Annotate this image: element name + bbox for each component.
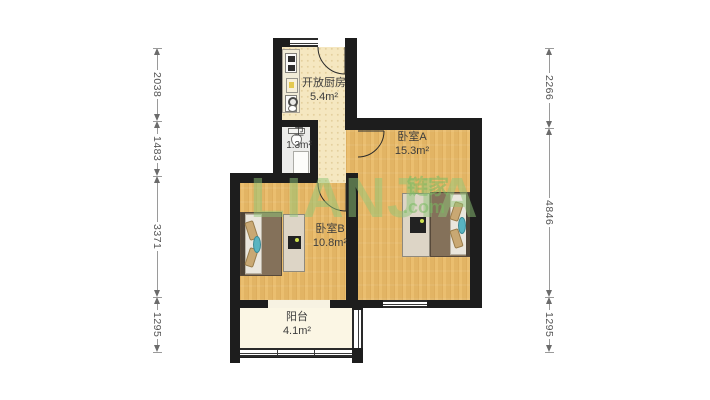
dim-left-4: 1295 xyxy=(149,297,165,352)
cushion-icon xyxy=(253,236,261,253)
dim-value: 1295 xyxy=(151,310,163,339)
room-area: 4.1m² xyxy=(283,324,311,338)
room-name: 阳台 xyxy=(283,310,311,324)
dimension-arrow-down-icon xyxy=(546,121,552,128)
dim-tick xyxy=(545,128,554,129)
dimension-arrow-up-icon xyxy=(546,128,552,135)
window-balcony-right xyxy=(352,310,363,348)
tv-power-dot xyxy=(295,238,299,242)
wall-kitchen-right xyxy=(345,38,357,130)
dimension-arrow-up-icon xyxy=(154,48,160,55)
dim-tick xyxy=(545,297,554,298)
stove-icon xyxy=(285,53,297,73)
window-pane xyxy=(358,310,359,348)
dim-line xyxy=(549,55,550,73)
dim-tick xyxy=(153,48,162,49)
dimension-arrow-up-icon xyxy=(154,176,160,183)
dimension-arrow-up-icon xyxy=(546,297,552,304)
dim-tick xyxy=(545,352,554,353)
window-pane xyxy=(240,353,352,354)
room-name: 开放厨房 xyxy=(302,76,346,90)
dimension-arrow-up-icon xyxy=(154,121,160,128)
cutting-board-icon xyxy=(286,78,298,93)
dim-line xyxy=(157,99,158,114)
dim-line xyxy=(549,103,550,121)
dimension-arrow-down-icon xyxy=(154,114,160,121)
dim-line xyxy=(549,135,550,198)
room-name: 卫 xyxy=(286,126,312,139)
dim-tick xyxy=(153,352,162,353)
dim-value: 1295 xyxy=(543,310,555,339)
room-label-bedroom-a: 卧室A 15.3m² xyxy=(395,130,429,158)
burner xyxy=(288,65,295,71)
dimension-arrow-down-icon xyxy=(546,290,552,297)
balcony-door-opening xyxy=(268,300,330,308)
window-balcony-bottom xyxy=(240,348,352,357)
dimension-arrow-down-icon xyxy=(546,345,552,352)
dimension-arrow-down-icon xyxy=(154,169,160,176)
dim-line xyxy=(157,251,158,290)
room-label-bathroom: 卫 1.3m² xyxy=(286,126,312,152)
dim-value: 3371 xyxy=(151,222,163,251)
window-pane xyxy=(290,43,318,44)
wall-left-outer xyxy=(230,173,240,363)
wall-bedroom-a-top xyxy=(353,118,482,130)
room-area: 5.4m² xyxy=(302,90,346,104)
dim-value: 4846 xyxy=(543,198,555,227)
entry-door-opening xyxy=(317,38,345,47)
dim-left-2: 1483 xyxy=(149,121,165,176)
dim-line xyxy=(157,183,158,222)
window-bedroom-a xyxy=(383,300,427,308)
room-label-balcony: 阳台 4.1m² xyxy=(283,310,311,338)
dim-line xyxy=(157,55,158,70)
room-label-kitchen: 开放厨房 5.4m² xyxy=(302,76,346,104)
sink-icon xyxy=(285,95,297,112)
dimension-arrow-up-icon xyxy=(546,48,552,55)
window-mullion xyxy=(314,350,315,355)
room-area: 1.3m² xyxy=(286,139,312,152)
dim-line xyxy=(549,227,550,290)
dim-left-3: 3371 xyxy=(149,176,165,297)
kitchen-counter xyxy=(282,49,300,113)
kettle-icon xyxy=(288,105,297,112)
dim-left-1: 2038 xyxy=(149,48,165,121)
watermark-cn: 链家 xyxy=(407,177,449,198)
tv-icon xyxy=(288,236,301,249)
floor-plan-canvas: 开放厨房 5.4m² 卫 1.3m² 卧室A 15.3m² 卧室B 10.8m²… xyxy=(0,0,710,400)
dimension-arrow-up-icon xyxy=(154,297,160,304)
window-kitchen xyxy=(290,38,318,47)
dim-value: 2038 xyxy=(151,70,163,99)
room-area: 15.3m² xyxy=(395,144,429,158)
wall-kitchen-left xyxy=(273,38,282,183)
dim-tick xyxy=(545,48,554,49)
dimension-arrow-down-icon xyxy=(154,290,160,297)
dim-right-2: 4846 xyxy=(541,128,557,297)
window-pane xyxy=(383,304,427,305)
dim-tick xyxy=(153,176,162,177)
dim-right-1: 2266 xyxy=(541,48,557,128)
dimension-arrow-down-icon xyxy=(154,345,160,352)
dim-tick xyxy=(153,297,162,298)
room-area: 10.8m² xyxy=(313,236,347,250)
dim-value: 1483 xyxy=(151,134,163,163)
watermark-tld: .com xyxy=(403,198,445,216)
dim-right-3: 1295 xyxy=(541,297,557,352)
dim-tick xyxy=(153,121,162,122)
room-name: 卧室A xyxy=(395,130,429,144)
dim-value: 2266 xyxy=(543,73,555,102)
board-chip xyxy=(289,82,294,88)
window-mullion xyxy=(277,350,278,355)
burner xyxy=(288,56,295,62)
